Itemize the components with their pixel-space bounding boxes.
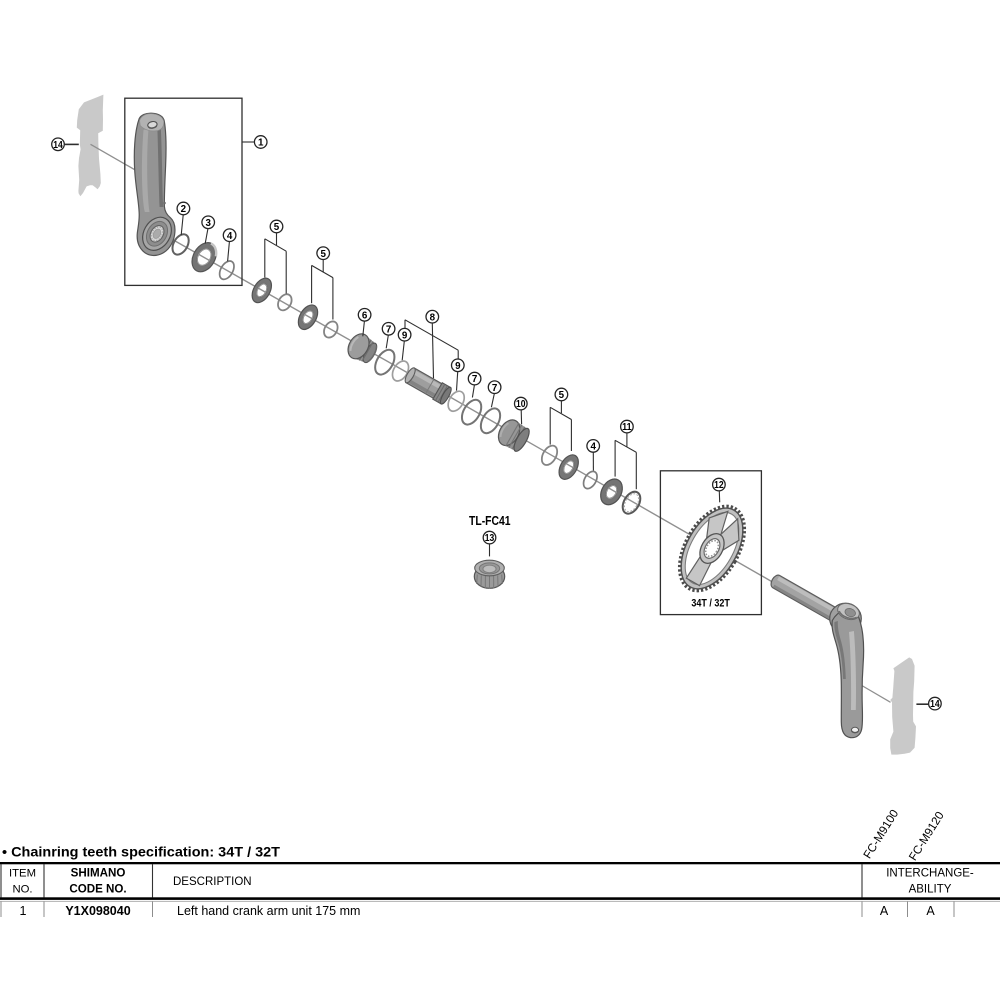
svg-text:A: A — [926, 904, 935, 918]
svg-text:7: 7 — [492, 383, 498, 394]
svg-text:DESCRIPTION: DESCRIPTION — [173, 876, 252, 888]
svg-text:8: 8 — [430, 312, 436, 323]
svg-text:4: 4 — [227, 231, 233, 242]
svg-text:SHIMANO: SHIMANO — [71, 867, 126, 880]
svg-text:ABILITY: ABILITY — [909, 884, 952, 896]
svg-text:13: 13 — [485, 533, 495, 544]
svg-text:11: 11 — [622, 422, 632, 433]
svg-text:1: 1 — [258, 138, 264, 149]
svg-text:9: 9 — [455, 361, 461, 372]
svg-text:1: 1 — [20, 904, 27, 918]
svg-text:Y1X098040: Y1X098040 — [65, 904, 130, 918]
svg-text:34T / 32T: 34T / 32T — [691, 598, 730, 610]
svg-text:14: 14 — [53, 140, 63, 151]
svg-text:• Chainring teeth specificatio: • Chainring teeth specification: 34T / 3… — [2, 845, 281, 860]
svg-text:NO.: NO. — [12, 884, 32, 896]
svg-text:Left hand crank arm unit 175 m: Left hand crank arm unit 175 mm — [177, 904, 360, 918]
svg-text:12: 12 — [714, 480, 724, 491]
svg-text:INTERCHANGE-: INTERCHANGE- — [886, 868, 974, 880]
svg-text:ITEM: ITEM — [9, 868, 36, 880]
svg-text:CODE NO.: CODE NO. — [69, 883, 126, 896]
svg-text:5: 5 — [320, 249, 326, 260]
svg-text:TL-FC41: TL-FC41 — [469, 513, 511, 528]
svg-text:7: 7 — [386, 324, 392, 335]
svg-text:2: 2 — [181, 204, 187, 215]
svg-text:9: 9 — [402, 330, 408, 341]
svg-text:3: 3 — [205, 218, 211, 229]
svg-text:10: 10 — [516, 399, 526, 410]
svg-text:6: 6 — [362, 310, 368, 321]
svg-text:5: 5 — [559, 390, 565, 401]
svg-text:5: 5 — [274, 222, 280, 233]
svg-text:14: 14 — [930, 699, 940, 710]
svg-text:4: 4 — [590, 442, 596, 453]
svg-text:A: A — [880, 904, 889, 918]
svg-text:7: 7 — [472, 374, 478, 385]
